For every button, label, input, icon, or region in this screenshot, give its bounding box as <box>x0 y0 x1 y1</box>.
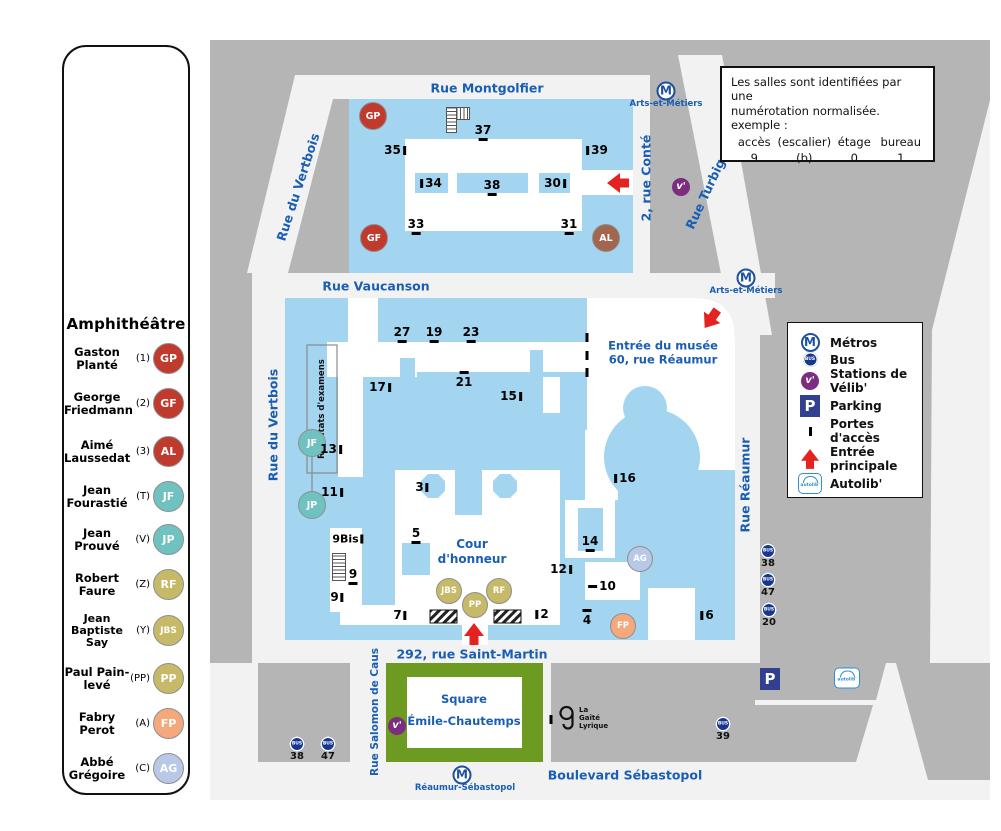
door-33: 33 <box>408 217 425 235</box>
cour-d-honneur-label: Cour d'honneur <box>438 537 507 567</box>
metro-icon: M <box>657 82 676 101</box>
bus-stop-number: 20 <box>762 617 776 628</box>
velib-icon: v' <box>672 178 690 196</box>
bus-stop-number: 47 <box>321 751 335 762</box>
car-icon <box>803 476 818 483</box>
autolib-icon: autolib' <box>834 668 860 689</box>
legend-metro: M Métros <box>798 333 914 352</box>
amphi-circle-rf: RF <box>153 569 184 600</box>
door-23: 23 <box>463 325 480 343</box>
door-9-lower: 9 <box>330 590 343 604</box>
amphi-row-jbs: Jean Baptiste Say (Y) JBS <box>64 613 188 649</box>
stairs-icon <box>332 553 346 581</box>
door-6: 6 <box>700 608 713 622</box>
door-37: 37 <box>475 123 492 141</box>
amphi-circle-pp: PP <box>153 663 184 694</box>
door-9-upper: 9 <box>349 567 358 585</box>
amphi-row-jp: Jean Prouvé (V) JP <box>64 524 188 555</box>
bus-icon: BUS <box>321 737 336 752</box>
bus-icon: BUS <box>803 352 818 367</box>
door-icon <box>809 427 812 436</box>
door-35: 35 <box>384 143 406 157</box>
bus-stop-number: 38 <box>761 558 775 569</box>
legend-bus: BUS Bus <box>798 352 914 367</box>
room-numbering-info-box: Les salles sont identifiées par une numé… <box>720 66 935 162</box>
amphi-circle-jf: JF <box>153 481 184 512</box>
campus-map-page: { "sidebar":{ "title":"Amphithéâtre", "i… <box>0 0 1001 831</box>
door-14: 14 <box>582 534 599 552</box>
bus-icon: BUS <box>290 737 305 752</box>
bus-icon: BUS <box>761 573 776 588</box>
parking-icon: P <box>760 668 780 690</box>
legend-entree: Entrée principale <box>798 445 914 473</box>
amphi-circle-jp: JP <box>153 524 184 555</box>
street-292-rue-saint-martin: 292, rue Saint-Martin <box>396 647 547 662</box>
amphi-circle-gf: GF <box>153 388 184 419</box>
autolib-icon: autolib' <box>798 473 822 494</box>
map-amphi-pp: PP <box>462 592 488 618</box>
door-21: 21 <box>456 371 473 389</box>
door-15: 15 <box>500 389 522 403</box>
amphi-row-gf: George Friedmann (2) GF <box>64 388 188 419</box>
amphi-circle-al: AL <box>153 436 184 467</box>
door-7: 7 <box>393 608 406 622</box>
door-4: 4 <box>583 609 592 627</box>
door-39: 39 <box>586 143 608 157</box>
map-amphi-gp: GP <box>359 102 387 130</box>
stairs-icon <box>446 107 457 133</box>
door-16: 16 <box>614 471 636 485</box>
door-12: 12 <box>550 562 572 576</box>
info-col-acces: accès9 <box>731 135 777 166</box>
amphitheatre-title: Amphithéâtre <box>64 315 188 333</box>
amphi-circle-jbs: JBS <box>153 615 184 646</box>
map-amphi-al: AL <box>592 224 620 252</box>
amphi-row-rf: Robert Faure (Z) RF <box>64 569 188 600</box>
room-30: 30 <box>544 176 566 190</box>
door-11: 11 <box>321 485 343 499</box>
door-5: 5 <box>412 526 421 544</box>
street-rue-montgolfier: Rue Montgolfier <box>431 81 544 96</box>
map-amphi-rf: RF <box>486 578 512 604</box>
amphi-circle-ag: AG <box>153 753 184 784</box>
musee-entrance-label: Entrée du musée 60, rue Réaumur <box>608 339 718 368</box>
info-col-etage: étage0 <box>831 135 877 166</box>
door-9bis: 9Bis <box>332 533 363 546</box>
metro-station-arts-et-metiers-mid: Arts-et-Métiers <box>710 286 783 296</box>
door-19: 19 <box>426 325 443 343</box>
car-icon <box>840 671 855 678</box>
entrance-arrow-icon <box>801 449 819 469</box>
street-2-rue-conte: 2, rue Conté <box>639 135 654 222</box>
velib-icon: v' <box>388 717 406 735</box>
metro-icon: M <box>737 269 756 288</box>
bus-stop-number: 38 <box>290 751 304 762</box>
street-rue-du-vertbois-main: Rue du Vertbois <box>266 369 281 481</box>
metro-station-reaumur-sebastopol: Réaumur-Sébastopol <box>415 783 515 793</box>
street-rue-salomon-de-caus: Rue Salomon de Caus <box>369 648 381 776</box>
info-col-bureau: bureau1 <box>878 135 924 166</box>
amphi-row-gp: Gaston Planté (1) GP <box>64 343 188 374</box>
door-31: 31 <box>561 217 578 235</box>
amphi-circle-fp: FP <box>153 708 184 739</box>
amphi-row-fp: Fabry Perot (A) FP <box>64 708 188 739</box>
door-3: 3 <box>415 480 428 494</box>
metro-icon: M <box>801 333 820 352</box>
amphi-row-jf: Jean Fourastié (T) JF <box>64 481 188 512</box>
amphi-circle-gp: GP <box>153 343 184 374</box>
bus-stop-number: 47 <box>761 587 775 598</box>
legend-parking: P Parking <box>798 395 914 417</box>
door-17: 17 <box>369 380 391 394</box>
gaite-lyrique-logo-icon <box>558 705 575 731</box>
room-34: 34 <box>420 176 442 190</box>
street-rue-reaumur: Rue Réaumur <box>738 438 753 533</box>
door-10: 10 <box>588 579 616 593</box>
gaite-lyrique: La Gaîté Lyrique <box>558 705 608 731</box>
amphi-row-ag: Abbé Grégoire (C) AG <box>64 753 188 784</box>
door-27: 27 <box>394 325 411 343</box>
room-38: 38 <box>484 178 501 196</box>
map-amphi-fp: FP <box>610 613 636 639</box>
street-rue-vaucanson: Rue Vaucanson <box>322 279 429 294</box>
bus-icon: BUS <box>761 544 776 559</box>
bus-icon: BUS <box>762 603 777 618</box>
velib-icon: v' <box>801 372 819 390</box>
bus-stop-number: 39 <box>716 731 730 742</box>
map-amphi-ag: AG <box>627 546 653 572</box>
bus-icon: BUS <box>716 717 731 732</box>
metro-icon: M <box>453 766 472 785</box>
metro-station-arts-et-metiers-top: Arts-et-Métiers <box>630 99 703 109</box>
legend-velib: v' Stations de Vélib' <box>798 367 914 395</box>
amphi-row-al: Aimé Laussedat (3) AL <box>64 436 188 467</box>
amphitheatre-legend-panel: Amphithéâtre Gaston Planté (1) GP George… <box>62 45 190 795</box>
street-boulevard-sebastopol: Boulevard Sébastopol <box>548 768 703 783</box>
door-13: 13 <box>320 442 342 456</box>
legend-portes: Portes d'accès <box>798 417 914 445</box>
square-emile-chautemps-label: Square Émile-Chautemps <box>407 689 520 733</box>
legend-autolib: autolib' Autolib' <box>798 473 914 494</box>
map-amphi-gf: GF <box>360 224 388 252</box>
info-col-escalier: (escalier)(b) <box>777 135 831 166</box>
campus-map: Rue Montgolfier Rue Vaucanson Rue du Ver… <box>210 40 990 800</box>
door-2: 2 <box>535 607 548 621</box>
map-amphi-jbs: JBS <box>436 578 462 604</box>
amphi-row-pp: Paul Pain- levé (PP) PP <box>64 663 188 694</box>
map-legend-box: M Métros BUS Bus v' Stations de Vélib' P… <box>787 322 923 498</box>
parking-icon: P <box>800 395 820 417</box>
